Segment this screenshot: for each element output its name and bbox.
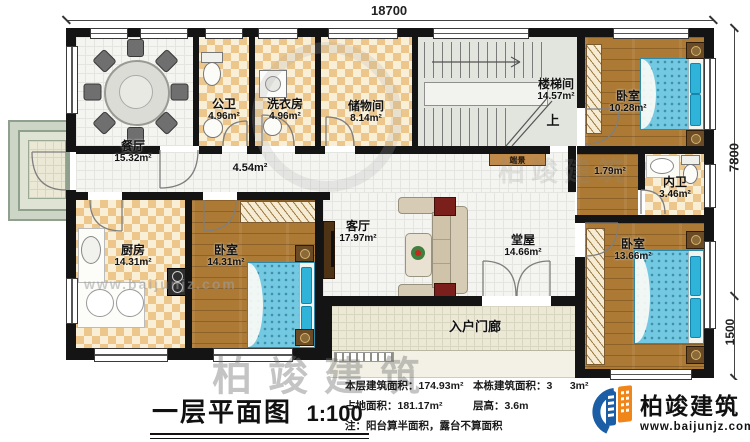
room-area: 15.32m² [101,153,165,164]
wall [247,146,262,154]
bed-blanket-fold [248,263,263,347]
label-inner-hall: 1.79m² [584,166,636,177]
window [94,348,168,362]
wall [575,296,585,369]
room-name: 内卫 [648,176,702,189]
room-area: 13.66m² [601,251,665,262]
room-name: 客厅 [327,220,389,233]
window [433,28,529,39]
wall [199,146,222,154]
nightstand [686,346,705,364]
room-name: 卧室 [596,90,660,103]
title-underline [150,438,369,439]
wall [66,192,88,200]
room-name: 卧室 [601,238,665,251]
pillow [690,63,701,94]
pillow [690,94,701,125]
wall [575,215,714,223]
label-dining: 餐厅 15.32m² [101,140,165,165]
plan-title: 一层平面图 [152,397,292,427]
stats-row-2: 占地面积：181.17m² 层高：3.6m [345,396,603,416]
wall [418,146,550,154]
label-public-bath: 公卫 4.96m² [200,98,248,123]
ensuite-sink [650,158,674,174]
room-area: 14.57m² [520,91,592,102]
inner-hall-floor [577,154,638,215]
room-area: 14.31m² [103,257,163,268]
room-area: 1.79m² [584,166,636,177]
label-bedroom-br: 卧室 13.66m² [601,238,665,263]
dining-chair [171,84,189,101]
side-entry-steps-inner [28,140,66,199]
dining-table-center [119,75,153,109]
title-block: 一层平面图 1:100 [150,392,369,439]
wall [577,146,714,154]
wall [122,192,203,200]
wall [249,37,255,146]
window [610,369,692,380]
room-name: 卧室 [195,244,257,257]
wall [355,146,418,154]
brand-name: 柏竣建筑 [640,387,750,421]
floor-height-value: 3.6m [505,400,529,412]
pillow [690,298,701,339]
stairs-upper-flight [424,42,546,78]
dining-chair [84,84,102,101]
room-name: 厨房 [103,244,163,257]
wall [568,146,576,192]
stats-block: 本层建筑面积：174.93m² 本栋建筑面积：3 3m² 占地面积：181.17… [345,376,603,436]
wardrobe-bedroom-bl [240,201,316,223]
room-area: 10.28m² [596,103,660,114]
wall [412,37,418,146]
nightstand [686,42,705,59]
room-area: 14.66m² [491,247,555,258]
wall [323,296,482,306]
wall [315,37,321,146]
label-stairs-up: 上 [544,114,562,129]
label-kitchen: 厨房 14.31m² [103,244,163,269]
dimension-line-top [66,20,714,21]
room-name: 公卫 [200,98,248,111]
window [613,28,689,39]
kitchen-sink [81,236,101,264]
window [140,28,188,39]
land-area-value: 181.17m² [398,400,443,412]
sofa-back [448,206,468,294]
wall [315,200,323,348]
window [66,278,78,324]
kitchen-basin [86,289,114,317]
nightstand [295,245,314,262]
label-bedroom-bl: 卧室 14.31m² [195,244,257,269]
window [704,164,716,208]
room-area: 4.96m² [255,111,315,122]
washing-machine-door [265,76,281,92]
room-area: 17.97m² [327,233,389,244]
building-area-value: 3 3m² [547,380,589,392]
wall [185,200,192,348]
dining-chair [127,39,144,57]
room-area: 3.46m² [648,189,702,200]
pillow [301,267,312,304]
room-name: 洗衣房 [255,98,315,111]
room-area: 4.54m² [220,162,280,174]
land-area-label: 占地面积： [345,400,398,412]
bed-blanket-fold [635,251,650,343]
dimension-right-front: 1500 [723,304,737,360]
plant-flower [415,250,421,256]
porch-pebble-strip [334,352,394,362]
label-ensuite: 内卫 3.46m² [648,176,702,201]
wall [638,154,645,190]
wall [237,192,330,200]
window [66,46,78,114]
brand-logo-icon [592,382,638,438]
wall [66,190,76,360]
wall [575,257,585,296]
cooktop-burner [172,271,183,282]
cooktop-burner [172,282,183,293]
side-table [434,197,456,216]
sofa-seat [432,212,451,288]
window [205,28,243,39]
console-table-label: 端景 [510,156,526,165]
room-name: 堂屋 [491,234,555,247]
dimension-right-main: 7800 [727,130,742,186]
stats-row-1: 本层建筑面积：174.93m² 本栋建筑面积：3 3m² [345,376,603,396]
floor-area-label: 本层建筑面积： [345,380,419,392]
label-main-hall: 堂屋 14.66m² [491,234,555,259]
window [704,58,716,130]
bed-bottom-right [634,250,704,344]
floor-height-label: 层高： [473,400,505,412]
stats-note: 注：阳台算半面积，露台不算面积 [345,416,603,436]
brand-url: www.baijunjz.com [640,421,750,433]
label-laundry: 洗衣房 4.96m² [255,98,315,123]
room-name: 楼梯间 [520,78,592,91]
room-area: 14.31m² [195,257,257,268]
label-storage: 储物间 8.14m² [330,100,402,125]
nightstand [686,231,705,249]
room-area: 4.96m² [200,111,248,122]
kitchen-basin [116,289,144,317]
window [213,348,293,362]
window [258,28,298,39]
floor-area-value: 174.93m² [419,380,464,392]
label-stairwell: 楼梯间 14.57m² [520,78,592,103]
label-porch: 入户门廊 [420,320,530,335]
room-name: 储物间 [330,100,402,113]
window [704,241,716,329]
label-bedroom-tr: 卧室 10.28m² [596,90,660,115]
toilet-bowl [203,62,221,86]
room-storage-floor [321,37,412,146]
window [328,28,398,39]
stairs-lower-flight [424,108,508,146]
building-area-label: 本栋建筑面积： [473,380,547,392]
wall [323,296,332,348]
room-name: 入户门廊 [420,320,530,335]
room-area: 8.14m² [330,113,402,124]
nightstand [686,130,705,147]
brand-logo: 柏竣建筑 www.baijunjz.com [592,380,750,440]
label-living: 客厅 17.97m² [327,220,389,245]
wall [295,146,325,154]
pillow [690,256,701,297]
up-text: 上 [546,113,559,128]
label-corridor: 4.54m² [220,162,280,174]
floor-plan-page: { "plan": { "dimensions": { "width_top":… [0,0,750,442]
wall [193,37,199,146]
dimension-top-value: 18700 [366,3,412,18]
nightstand [295,329,314,346]
room-name: 餐厅 [101,140,165,153]
window [90,28,128,39]
